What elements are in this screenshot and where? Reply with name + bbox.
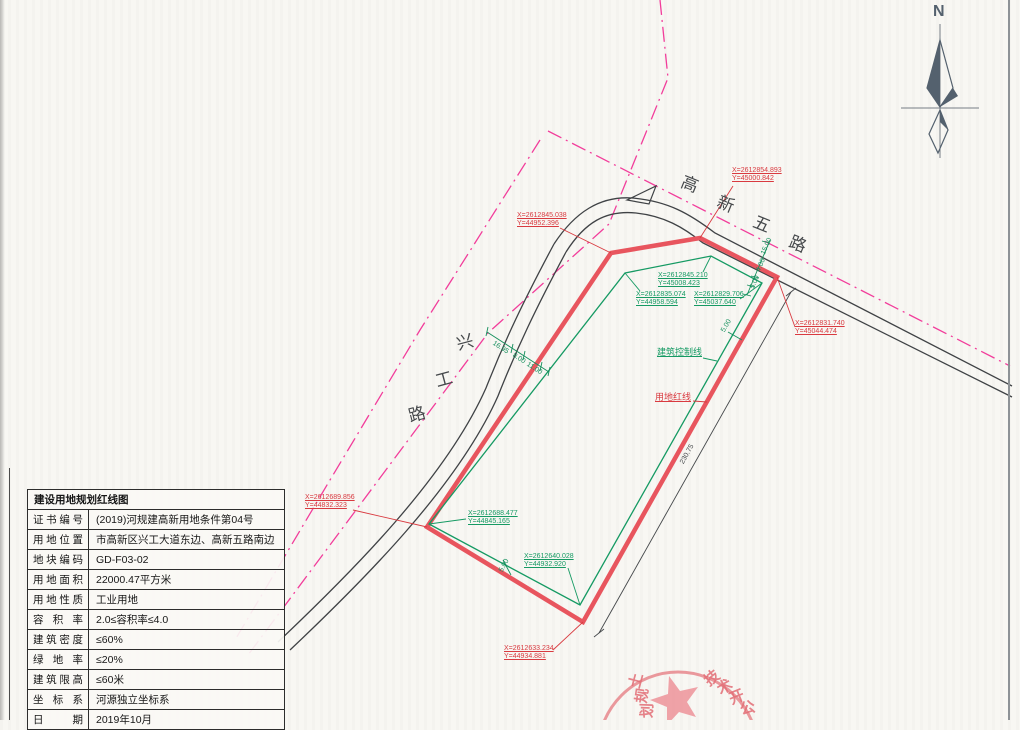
- table-row-parcel-code: 地块编码 GD-F03-02: [28, 549, 284, 569]
- north-arrow: [901, 24, 979, 158]
- row-label: 容积率: [33, 612, 83, 627]
- red-coord-southwest: X=2612689.856 Y=44832.323: [305, 494, 355, 510]
- red-coord-south: X=2612633.234 Y=44934.881: [504, 645, 554, 661]
- xinggong-road-edge-west: [278, 244, 554, 642]
- green-coord-southwest: X=2612688.477 Y=44845.165: [468, 510, 518, 526]
- row-label: 用地性质: [33, 592, 83, 607]
- scan-edge-shadow: [0, 0, 5, 720]
- building-control-line-label: 建筑控制线: [657, 345, 702, 358]
- east-side-dimension-line: [594, 288, 796, 637]
- gaoxinwulu-road-edge-north: [554, 198, 1012, 386]
- green-coord-north: X=2612845.210 Y=45008.423: [658, 272, 708, 288]
- seal-char-2: 规: [630, 687, 653, 705]
- row-value: 2.0≤容积率≤4.0: [89, 612, 168, 627]
- table-row-building-density: 建筑密度 ≤60%: [28, 629, 284, 649]
- red-coord-north: X=2612854.893 Y=45000.842: [732, 167, 782, 183]
- row-value: ≤60米: [89, 672, 124, 687]
- row-label: 坐 标 系: [33, 692, 83, 707]
- row-label: 证书编号: [33, 512, 83, 527]
- row-value: (2019)河规建高新用地条件第04号: [89, 512, 254, 527]
- seal-star: [650, 676, 698, 720]
- xinggong-centerline: [248, 0, 668, 655]
- green-coord-south: X=2612640.028 Y=44932.920: [524, 553, 574, 569]
- table-row-green-ratio: 绿地率 ≤20%: [28, 649, 284, 669]
- table-title-row: 建设用地规划红线图: [28, 490, 284, 509]
- seal-char-3: 划: [636, 703, 658, 719]
- land-use-info-table: 建设用地规划红线图 证书编号 (2019)河规建高新用地条件第04号 用地位置 …: [27, 489, 285, 730]
- scanned-planning-redline-map: { "page": { "title": "建设用地规划红线图" }, "tab…: [0, 0, 1020, 720]
- green-coord-northwest: X=2612835.074 Y=44958.594: [636, 291, 686, 307]
- row-label: 地块编码: [33, 552, 83, 567]
- row-label: 绿地率: [33, 652, 83, 667]
- road-edges: [278, 186, 1012, 650]
- row-value: 河源独立坐标系: [89, 692, 170, 707]
- sheet-frame-left: [9, 468, 10, 720]
- row-value: ≤20%: [89, 654, 123, 666]
- row-label: 建筑限高: [33, 672, 83, 687]
- row-value: 22000.47平方米: [89, 572, 171, 587]
- red-coord-west: X=2612845.038 Y=44952.396: [517, 212, 567, 228]
- row-value: ≤60%: [89, 634, 123, 646]
- row-value: GD-F03-02: [89, 554, 149, 566]
- red-line-label: 用地红线: [655, 390, 691, 403]
- row-label: 用地面积: [33, 572, 83, 587]
- sheet-frame-right: [1008, 0, 1010, 720]
- table-row-plot-ratio: 容积率 2.0≤容积率≤4.0: [28, 609, 284, 629]
- planning-centerlines: [235, 0, 1010, 655]
- row-label: 建筑密度: [33, 632, 83, 647]
- table-row-area: 用地面积 22000.47平方米: [28, 569, 284, 589]
- row-value: 工业用地: [89, 592, 138, 607]
- table-row-land-nature: 用地性质 工业用地: [28, 589, 284, 609]
- table-row-location: 用地位置 市高新区兴工大道东边、高新五路南边: [28, 529, 284, 549]
- table-row-date: 日 期 2019年10月: [28, 709, 284, 729]
- table-row-coordinate-system: 坐 标 系 河源独立坐标系: [28, 689, 284, 709]
- table-row-certificate: 证书编号 (2019)河规建高新用地条件第04号: [28, 509, 284, 529]
- row-value: 市高新区兴工大道东边、高新五路南边: [89, 532, 275, 547]
- building-control-line-polygon: [429, 256, 762, 605]
- table-title: 建设用地规划红线图: [28, 492, 129, 507]
- row-label: 用地位置: [33, 532, 83, 547]
- red-coord-east: X=2612831.740 Y=45044.474: [795, 320, 845, 336]
- green-coord-northeast: X=2612829.706 Y=45037.640: [694, 291, 744, 307]
- green-coordinate-leaders: [429, 256, 762, 605]
- table-row-height-limit: 建筑限高 ≤60米: [28, 669, 284, 689]
- north-label: N: [933, 3, 945, 21]
